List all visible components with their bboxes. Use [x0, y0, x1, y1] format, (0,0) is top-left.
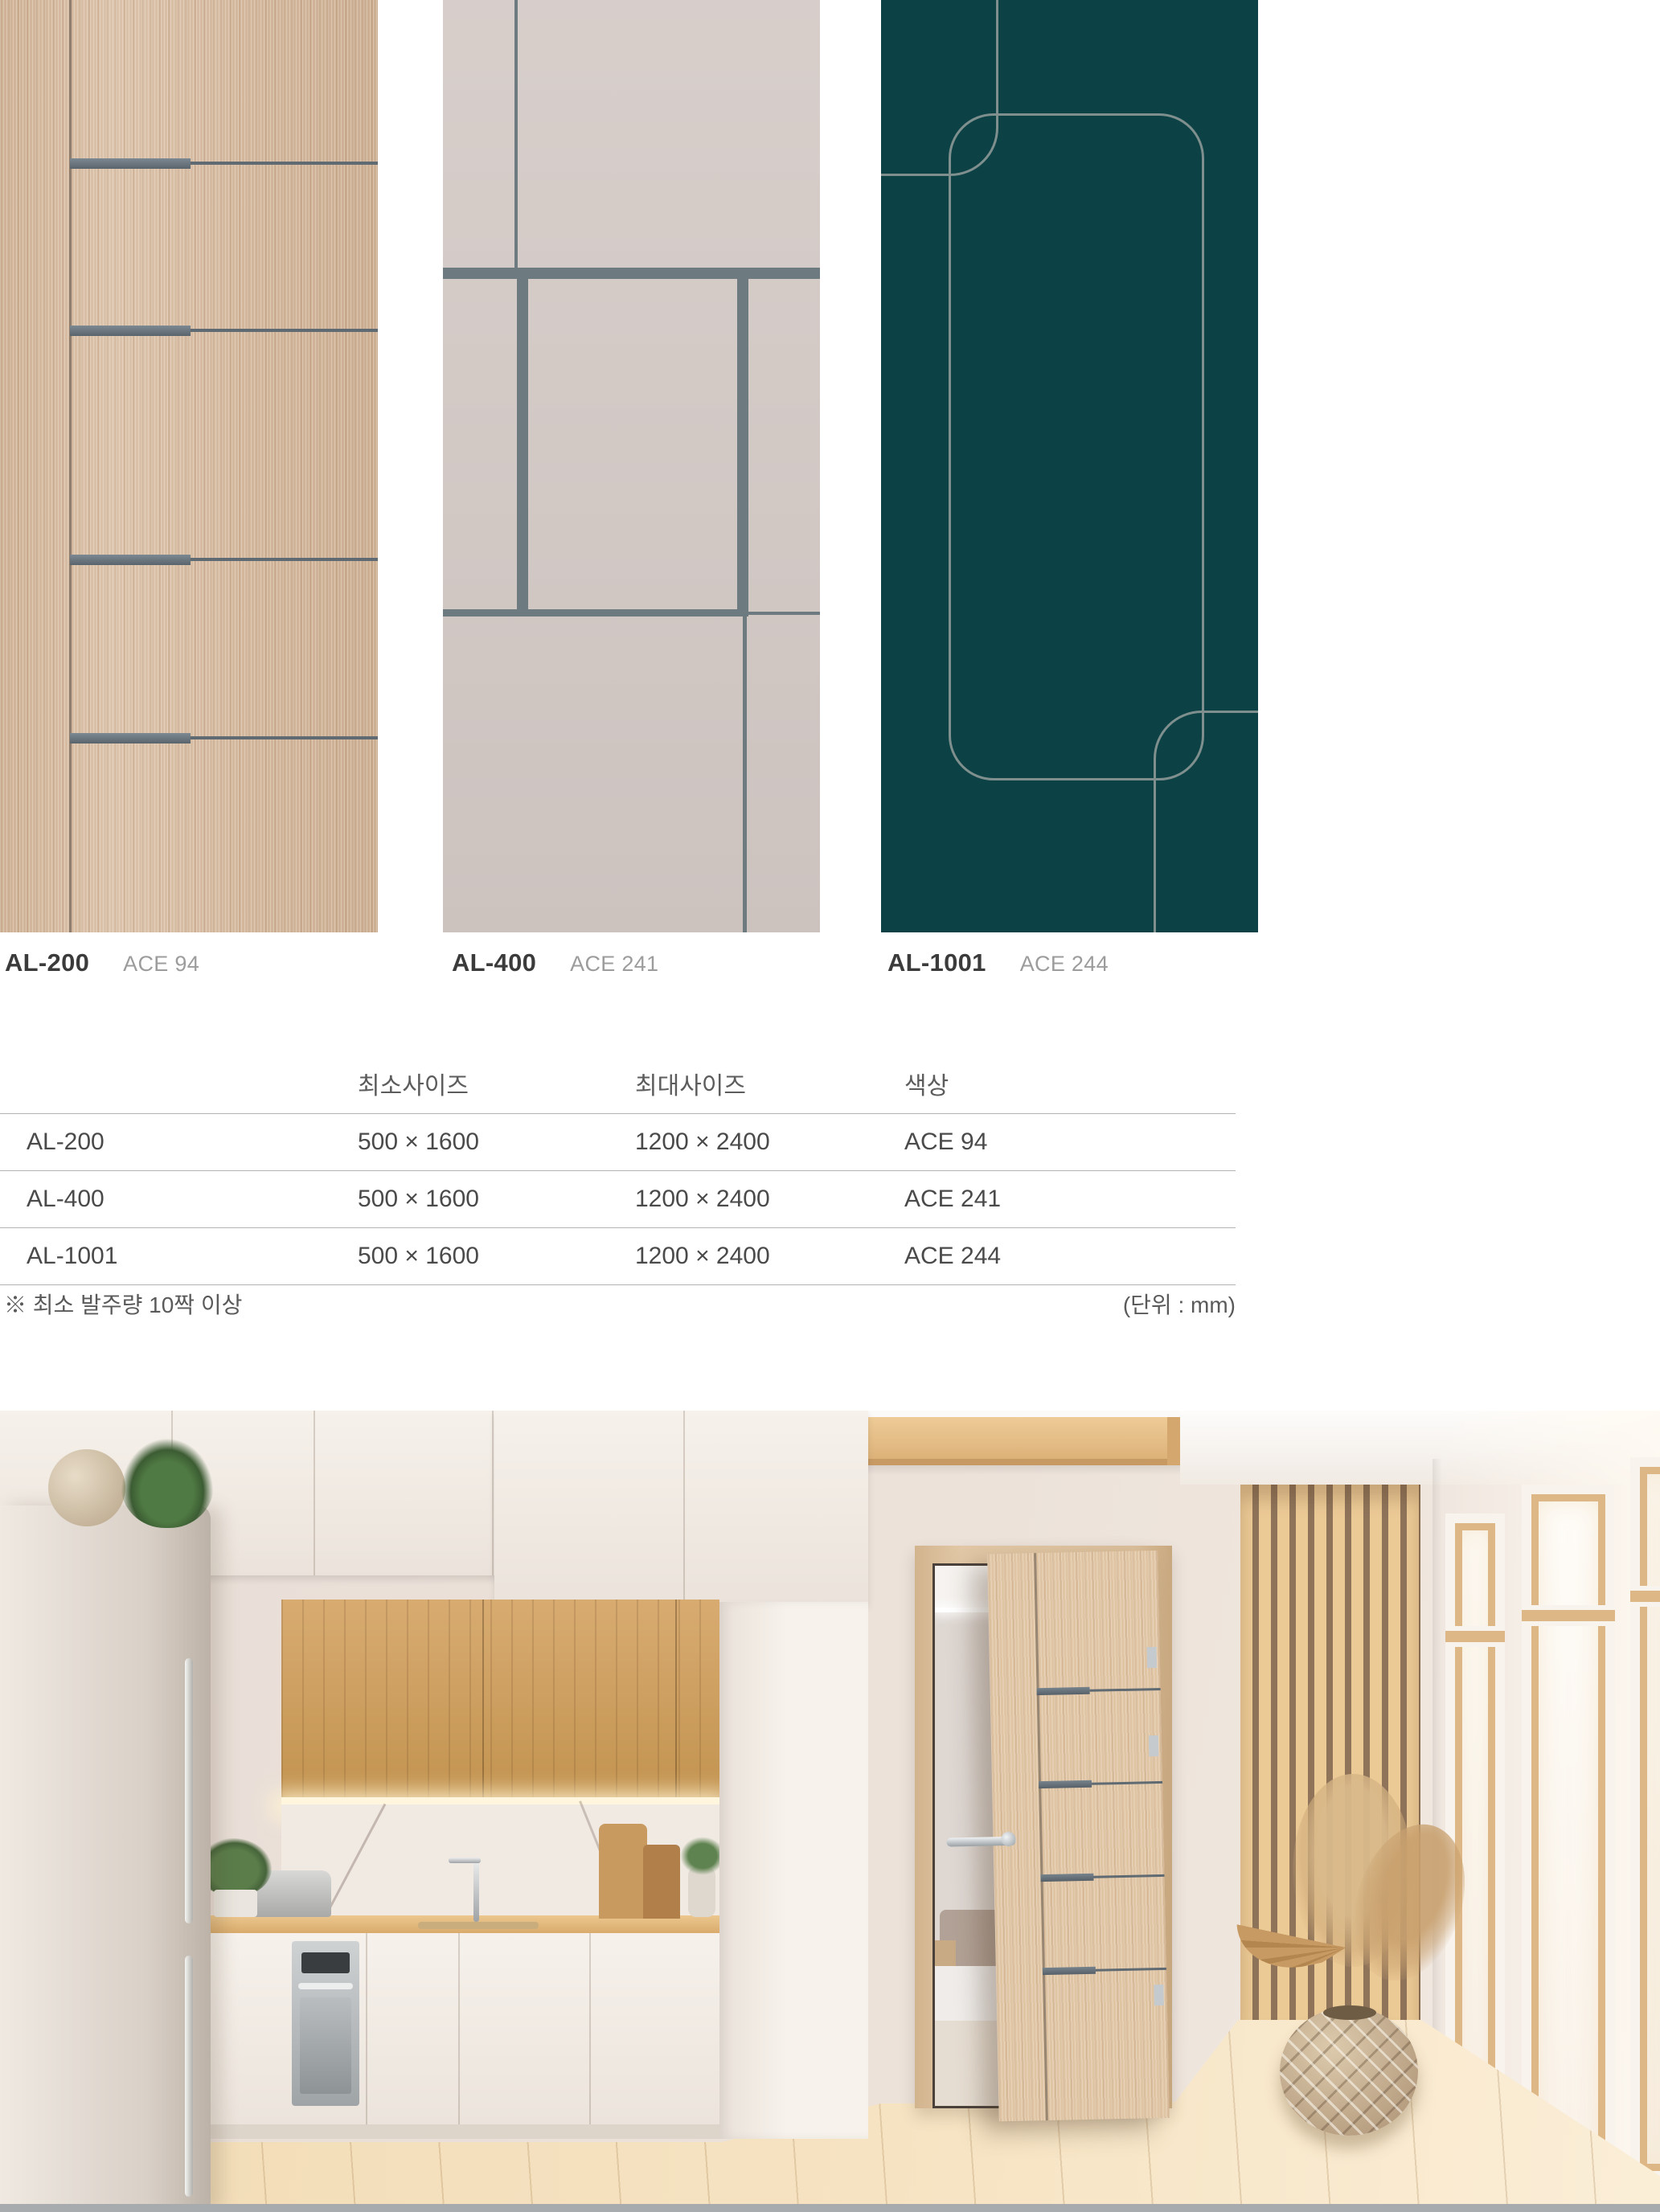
swatch-groove-line [69, 0, 72, 932]
decor-plant [121, 1438, 214, 1528]
swatch-code: AL-1001 [887, 948, 986, 977]
cutting-board [643, 1845, 680, 1919]
sink [418, 1922, 539, 1929]
fridge-handle [185, 1956, 193, 2197]
rounded-corner-line [881, 0, 998, 176]
interior-photo [0, 1411, 1660, 2212]
window-glass [1647, 1474, 1660, 2164]
table-row: AL-200 500 × 1600 1200 × 2400 ACE 94 [0, 1113, 1236, 1170]
window-wood-frame [1531, 1494, 1605, 2163]
metal-strip [70, 158, 191, 169]
cell-model: AL-1001 [0, 1243, 330, 1270]
built-in-oven [292, 1941, 359, 2106]
vase-opening [1323, 2005, 1376, 2020]
cell-model: AL-400 [0, 1186, 330, 1213]
window [1522, 1485, 1615, 2173]
open-door-panel [987, 1550, 1170, 2121]
cabinet-seam [314, 1411, 315, 1575]
pampas-bouquet [1244, 1774, 1461, 2031]
grid-band [443, 268, 820, 279]
metal-strip-line [191, 329, 378, 332]
grid-band [443, 609, 748, 616]
swatch-code: AL-400 [452, 948, 536, 977]
table-row: AL-400 500 × 1600 1200 × 2400 ACE 241 [0, 1170, 1236, 1227]
cell-model: AL-200 [0, 1129, 330, 1156]
cell-min-size: 500 × 1600 [330, 1243, 607, 1270]
spec-header-row: 최소사이즈 최대사이즈 색상 [0, 1054, 1236, 1113]
door-hinge [1147, 1647, 1158, 1668]
photo-bottom-strip [0, 2204, 1660, 2212]
base-cabinets [211, 1933, 719, 2138]
door-hinge [1154, 1985, 1164, 2005]
cabinet-seam [458, 1933, 460, 2138]
door-swatch-al-1001 [881, 0, 1258, 932]
cabinet-seam [482, 1600, 484, 1800]
cabinet-seam [683, 1411, 685, 1604]
rounded-outline [949, 113, 1204, 780]
door-hinge [1149, 1735, 1159, 1756]
unit-note: (단위 : mm) [1123, 1288, 1236, 1320]
cell-max-size: 1200 × 2400 [607, 1243, 884, 1270]
cell-min-size: 500 × 1600 [330, 1129, 607, 1156]
faucet [473, 1859, 479, 1922]
cell-max-size: 1200 × 2400 [607, 1129, 884, 1156]
caption-al-1001: AL-1001ACE 244 [887, 948, 1109, 977]
door-groove-line [1034, 1553, 1048, 2120]
header-color: 색상 [884, 1066, 1236, 1101]
door-strip-line [1092, 1781, 1162, 1785]
door-swatch-al-200 [0, 0, 378, 932]
cutting-board [599, 1824, 647, 1919]
window-wood-frame [1640, 1467, 1660, 2171]
upper-cabinets-right [494, 1411, 868, 1604]
door-metal-strip [1039, 1780, 1092, 1788]
fridge [0, 1505, 211, 2212]
header-max-size: 최대사이즈 [607, 1066, 884, 1101]
door-strip-line [1090, 1688, 1161, 1692]
tall-cabinet-column [719, 1602, 868, 2139]
min-order-note: ※ 최소 발주량 10짝 이상 [0, 1288, 242, 1320]
metal-strip [70, 555, 191, 565]
cabinet-seam [366, 1933, 367, 2138]
cabinet-seam [492, 1411, 494, 1575]
window-glass [1539, 1501, 1598, 2156]
door-metal-strip [1043, 1967, 1096, 1975]
toe-kick [211, 2124, 719, 2139]
table-footnotes: ※ 최소 발주량 10짝 이상 (단위 : mm) [0, 1288, 1236, 1320]
under-cabinet-light [281, 1797, 719, 1804]
header-min-size: 최소사이즈 [330, 1066, 607, 1101]
cell-color: ACE 241 [884, 1186, 1236, 1213]
metal-strip [70, 326, 191, 336]
fridge-handle [185, 1658, 193, 1923]
swatch-code: AL-200 [5, 948, 89, 977]
spec-table: 최소사이즈 최대사이즈 색상 AL-200 500 × 1600 1200 × … [0, 1054, 1236, 1285]
oven-display [301, 1952, 350, 1973]
door-strip-line [1096, 1968, 1166, 1972]
door-metal-strip [1037, 1687, 1090, 1695]
oven-handle [298, 1983, 353, 1989]
window [1630, 1457, 1660, 2181]
decor-ball [48, 1449, 125, 1526]
cell-color: ACE 244 [884, 1243, 1236, 1270]
plant-pot [214, 1890, 257, 1917]
caption-al-200: AL-200ACE 94 [5, 948, 199, 977]
cell-color: ACE 94 [884, 1129, 1236, 1156]
table-row: AL-1001 500 × 1600 1200 × 2400 ACE 244 [0, 1227, 1236, 1285]
faucet-spout [449, 1858, 481, 1863]
vase-plant [680, 1837, 725, 1875]
swatch-finish: ACE 94 [123, 952, 199, 976]
grid-bar [737, 279, 748, 611]
wood-upper-cabinets [281, 1600, 719, 1800]
door-metal-strip [1040, 1874, 1093, 1882]
door-strip-line [1093, 1874, 1164, 1878]
grid-line [748, 612, 820, 615]
window-transom-bar [1630, 1586, 1660, 1607]
rattan-ball-vase [1280, 2007, 1418, 2136]
grid-bar [517, 279, 528, 611]
cell-min-size: 500 × 1600 [330, 1186, 607, 1213]
cabinet-seam [675, 1600, 677, 1800]
caption-al-400: AL-400ACE 241 [452, 948, 658, 977]
metal-strip-line [191, 736, 378, 739]
marble-vein [324, 1804, 387, 1919]
oven-door-glass [300, 1997, 351, 2094]
cabinet-seam [589, 1933, 591, 2138]
window-transom-bar [1445, 1626, 1505, 1647]
rounded-corner-line [1154, 711, 1258, 932]
swatch-finish: ACE 244 [1020, 952, 1109, 976]
metal-strip-line [191, 558, 378, 561]
cell-max-size: 1200 × 2400 [607, 1186, 884, 1213]
window-transom-bar [1522, 1605, 1615, 1626]
ceiling-beam-end [1167, 1417, 1180, 1465]
metal-strip-line [191, 162, 378, 165]
door-swatch-al-400 [443, 0, 820, 932]
metal-strip [70, 733, 191, 743]
grid-line [743, 616, 747, 932]
swatch-finish: ACE 241 [570, 952, 658, 976]
grid-line [514, 0, 518, 269]
